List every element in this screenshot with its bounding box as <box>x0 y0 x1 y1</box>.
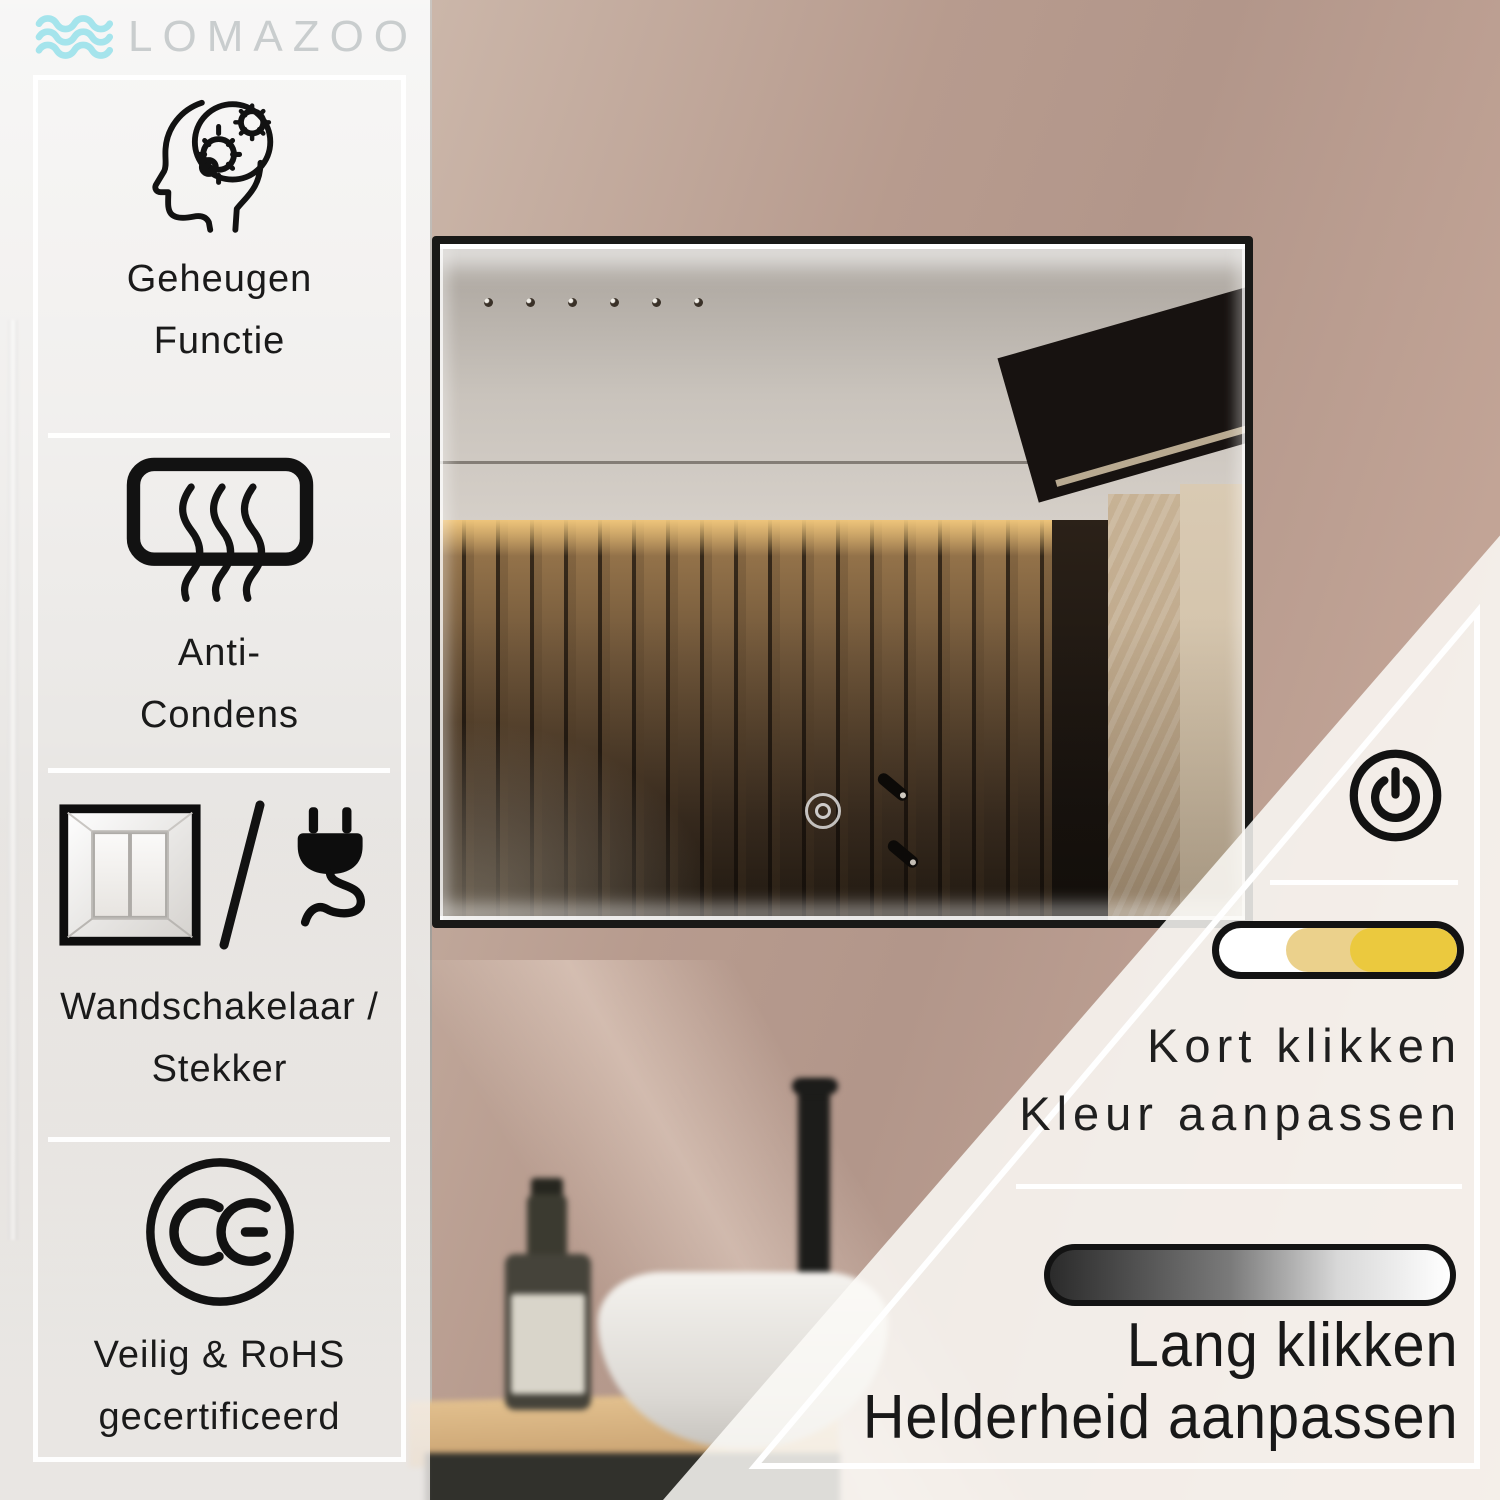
anti-condensation-icon <box>33 452 406 622</box>
slash-icon <box>217 800 267 950</box>
soap-bottle <box>505 1178 591 1410</box>
lomazoo-logo-text: LOMAZOO <box>128 12 418 62</box>
feature-label: gecertificeerd <box>33 1386 406 1448</box>
brightness-bar <box>1044 1244 1456 1306</box>
wall-switch-icon <box>57 802 203 948</box>
power-icon <box>1347 747 1444 844</box>
reflection-shading <box>440 244 1245 920</box>
bottle-label <box>511 1294 585 1394</box>
short-click-caption: Kort klikken Kleur aanpassen <box>1019 1012 1462 1148</box>
head-gears-icon <box>33 86 406 248</box>
long-click-caption: Lang klikken Helderheid aanpassen <box>862 1310 1458 1454</box>
panel-divider <box>48 433 390 438</box>
color-slider <box>1212 921 1464 979</box>
product-infographic: LOMAZOO <box>0 0 1500 1500</box>
feature-label: Geheugen <box>33 248 406 310</box>
feature-label: Condens <box>33 684 406 746</box>
led-mirror <box>432 236 1253 928</box>
feature-label: Wandschakelaar / <box>33 976 406 1038</box>
brand-logo: LOMAZOO <box>34 12 418 62</box>
led-strip-left <box>440 244 443 920</box>
led-strip-right <box>1242 244 1245 920</box>
triangle-divider <box>1016 1184 1462 1189</box>
feature-wall-switch-plug: Wandschakelaar / Stekker <box>33 800 406 1100</box>
panel-divider <box>48 1137 390 1142</box>
feature-label: Stekker <box>33 1038 406 1100</box>
feature-ce-certified: Veilig & RoHS gecertificeerd <box>33 1152 406 1448</box>
caption-line: Kleur aanpassen <box>1019 1080 1462 1148</box>
feature-anti-condensation: Anti- Condens <box>33 452 406 746</box>
bottle-neck <box>527 1194 567 1260</box>
color-slider-segment-end <box>1350 928 1457 972</box>
caption-line: Kort klikken <box>1019 1012 1462 1080</box>
caption-line: Helderheid aanpassen <box>862 1382 1458 1454</box>
triangle-divider <box>1270 880 1458 885</box>
power-plug-icon <box>281 802 383 948</box>
wall-switch-plug-icon <box>33 800 406 950</box>
led-strip-top <box>440 244 1245 249</box>
ce-mark-icon <box>33 1152 406 1312</box>
feature-label: Veilig & RoHS <box>33 1324 406 1386</box>
mirror-glass <box>440 244 1245 920</box>
panel-divider <box>48 768 390 773</box>
caption-line: Lang klikken <box>862 1310 1458 1382</box>
led-strip-bottom <box>440 916 1245 920</box>
faucet-spout <box>792 1078 838 1094</box>
feature-label: Functie <box>33 310 406 372</box>
waves-icon <box>34 14 120 60</box>
feature-memory: Geheugen Functie <box>33 86 406 372</box>
faucet <box>798 1082 830 1278</box>
feature-label: Anti- <box>33 622 406 684</box>
